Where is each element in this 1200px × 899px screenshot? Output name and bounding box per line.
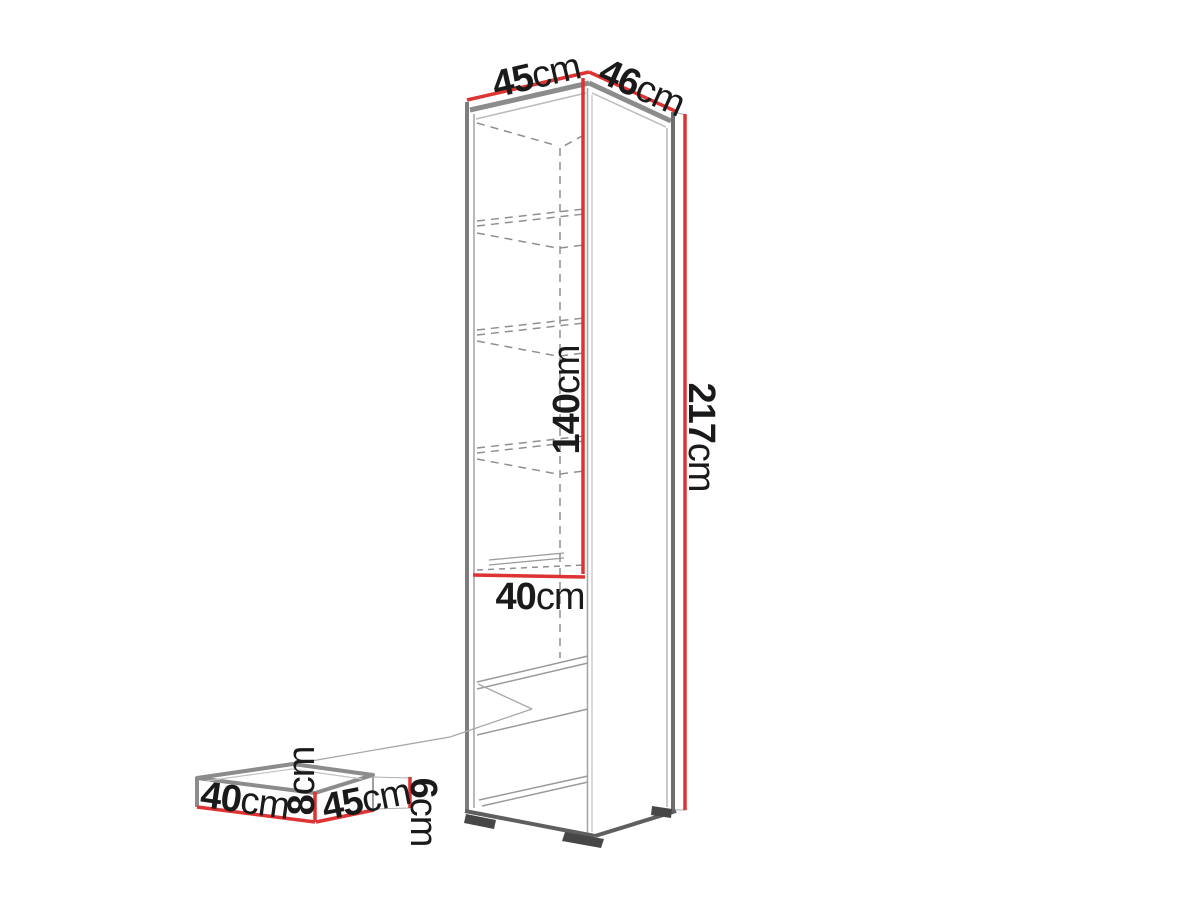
inner-width-label: 40cm xyxy=(496,576,585,618)
diagram-canvas: 45cm 46cm 140cm 217cm 40cm 40cm 8cm 45cm… xyxy=(0,0,1200,899)
inner-height-label: 140cm xyxy=(546,345,588,454)
furniture-dimension-diagram: 45cm 46cm 140cm 217cm 40cm 40cm 8cm 45cm… xyxy=(0,0,1200,899)
detail-height-label: 8cm xyxy=(281,747,323,816)
total-height-label: 217cm xyxy=(680,382,722,491)
detail-front-height-label: 6cm xyxy=(402,778,444,847)
diagram-background xyxy=(0,0,1200,899)
